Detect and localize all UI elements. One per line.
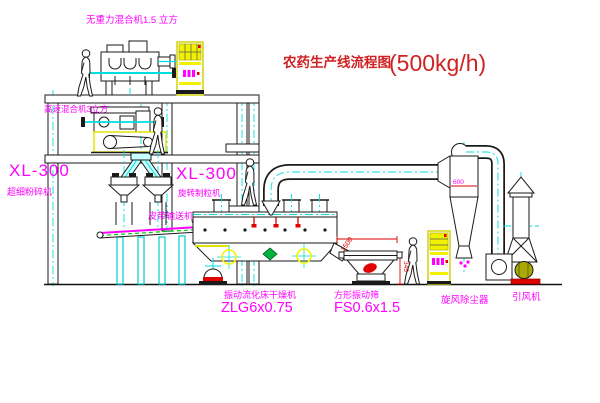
label-mill-model: XL-300 xyxy=(9,161,70,180)
label-sieve-name: 方形振动筛 xyxy=(334,289,379,300)
control-cabinet-icon xyxy=(427,231,451,284)
belt-conveyor-machine xyxy=(97,221,209,284)
label-granulator-model: XL-300 xyxy=(176,164,237,183)
label-cyclone: 旋风除尘器 xyxy=(441,294,489,306)
cad-drawing-page: 无重力混合机1.5 立方 高速混合机3立方 XL-300 超细粉碎机 XL-30… xyxy=(0,0,600,403)
label-high-speed-mixer: 高速混合机3立方 xyxy=(44,104,108,114)
dim-sieve-height: 345 xyxy=(402,261,409,272)
label-mill-name: 超细粉碎机 xyxy=(7,186,52,197)
vibration-motor-icon xyxy=(199,258,227,285)
page-title: 农药生产线流程图 xyxy=(282,54,391,70)
label-dryer-name: 振动流化床干燥机 xyxy=(224,289,296,300)
control-cabinet-icon xyxy=(176,42,204,95)
label-belt-conveyor: 皮带输送机 xyxy=(148,210,193,221)
worker-icon xyxy=(78,50,93,96)
label-granulator-name: 旋转制粒机 xyxy=(178,188,221,198)
dim-cyclone-diameter: 600 xyxy=(453,179,464,186)
page-title-capacity: (500kg/h) xyxy=(389,50,486,76)
floor2-slab xyxy=(45,155,259,163)
gravity-mixer-machine xyxy=(86,40,177,95)
label-gravity-mixer: 无重力混合机1.5 立方 xyxy=(86,14,178,26)
flow-diagram-canvas: 无重力混合机1.5 立方 高速混合机3立方 XL-300 超细粉碎机 XL-30… xyxy=(0,0,600,403)
mezzanine-slab-upper xyxy=(226,144,259,152)
label-sieve-model: FS0.6x1.5 xyxy=(334,300,400,316)
fan-motor-icon xyxy=(515,262,533,279)
label-dryer-model: ZLG6x0.75 xyxy=(221,300,293,316)
label-fan: 引风机 xyxy=(512,291,541,303)
